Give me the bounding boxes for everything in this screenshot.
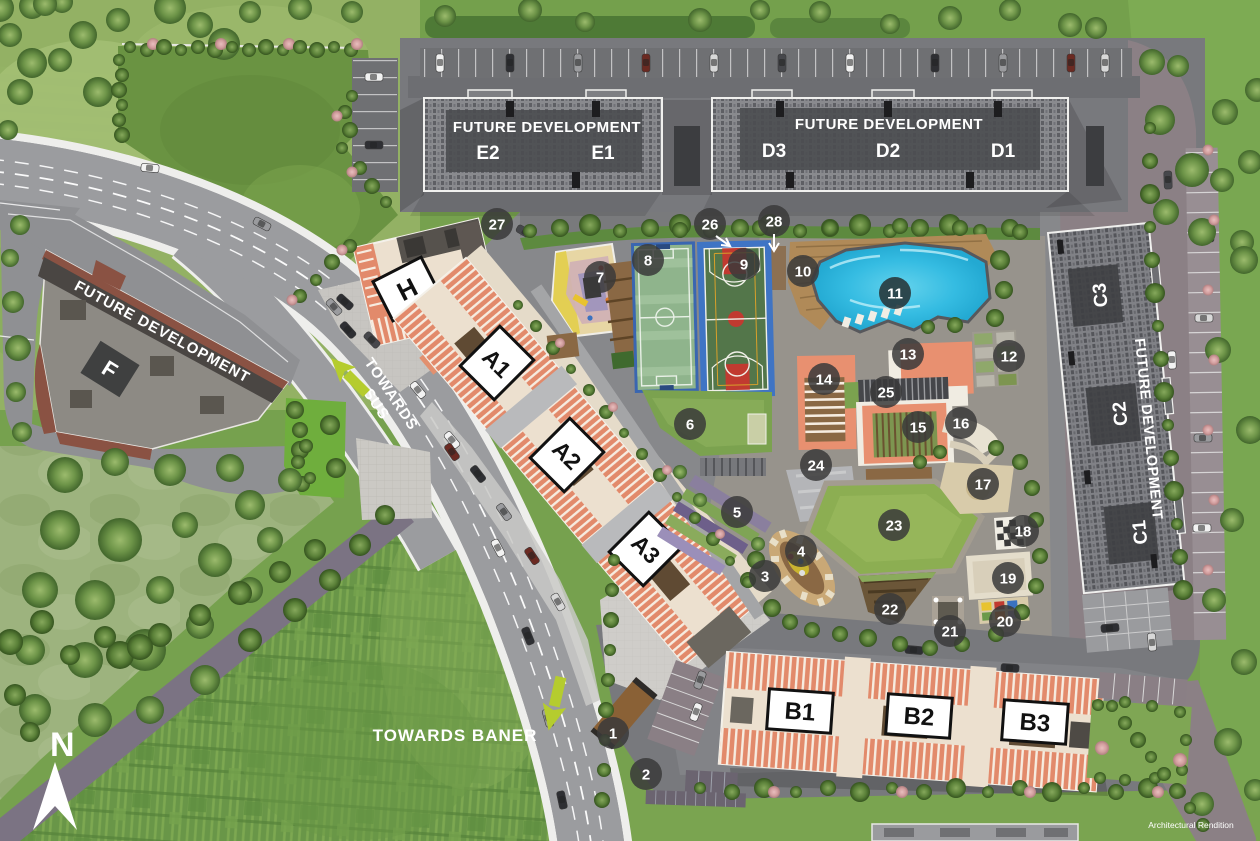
svg-text:E2: E2 [476,143,499,164]
svg-text:3: 3 [761,568,769,585]
svg-text:4: 4 [797,543,806,560]
svg-text:8: 8 [644,252,652,269]
svg-text:21: 21 [942,623,959,640]
svg-text:TOWARDS BANER: TOWARDS BANER [373,726,538,745]
svg-text:23: 23 [886,517,903,534]
svg-text:12: 12 [1001,348,1018,365]
svg-text:24: 24 [808,457,825,474]
svg-text:27: 27 [489,216,506,233]
svg-text:FUTURE DEVELOPMENT: FUTURE DEVELOPMENT [453,119,641,136]
svg-text:22: 22 [882,601,899,618]
svg-text:17: 17 [975,476,992,493]
svg-text:10: 10 [795,263,812,280]
svg-text:C1: C1 [1129,519,1152,546]
svg-text:B1: B1 [784,698,816,727]
svg-text:Architectural Rendition: Architectural Rendition [1148,820,1234,830]
svg-text:E1: E1 [591,143,615,164]
svg-text:C3: C3 [1089,282,1112,308]
svg-text:9: 9 [740,256,748,273]
svg-text:26: 26 [702,216,719,233]
svg-text:16: 16 [953,415,970,432]
svg-text:13: 13 [900,346,917,363]
svg-text:11: 11 [887,285,903,302]
svg-text:C2: C2 [1109,401,1132,427]
svg-text:18: 18 [1015,523,1032,540]
svg-text:FUTURE DEVELOPMENT: FUTURE DEVELOPMENT [795,116,983,133]
svg-text:D2: D2 [876,141,900,162]
svg-text:28: 28 [766,213,783,230]
svg-text:7: 7 [596,269,604,286]
svg-text:1: 1 [609,725,617,742]
svg-text:25: 25 [878,384,895,401]
svg-text:14: 14 [816,371,833,388]
svg-text:B2: B2 [903,703,935,732]
svg-text:N: N [50,726,75,764]
svg-text:19: 19 [1000,570,1017,587]
svg-text:2: 2 [642,766,650,783]
svg-text:D3: D3 [762,141,786,162]
svg-text:D1: D1 [991,141,1016,162]
svg-text:20: 20 [997,613,1014,630]
svg-text:6: 6 [686,416,694,433]
svg-text:5: 5 [733,504,741,521]
svg-text:15: 15 [910,419,927,436]
svg-text:B3: B3 [1019,709,1051,738]
